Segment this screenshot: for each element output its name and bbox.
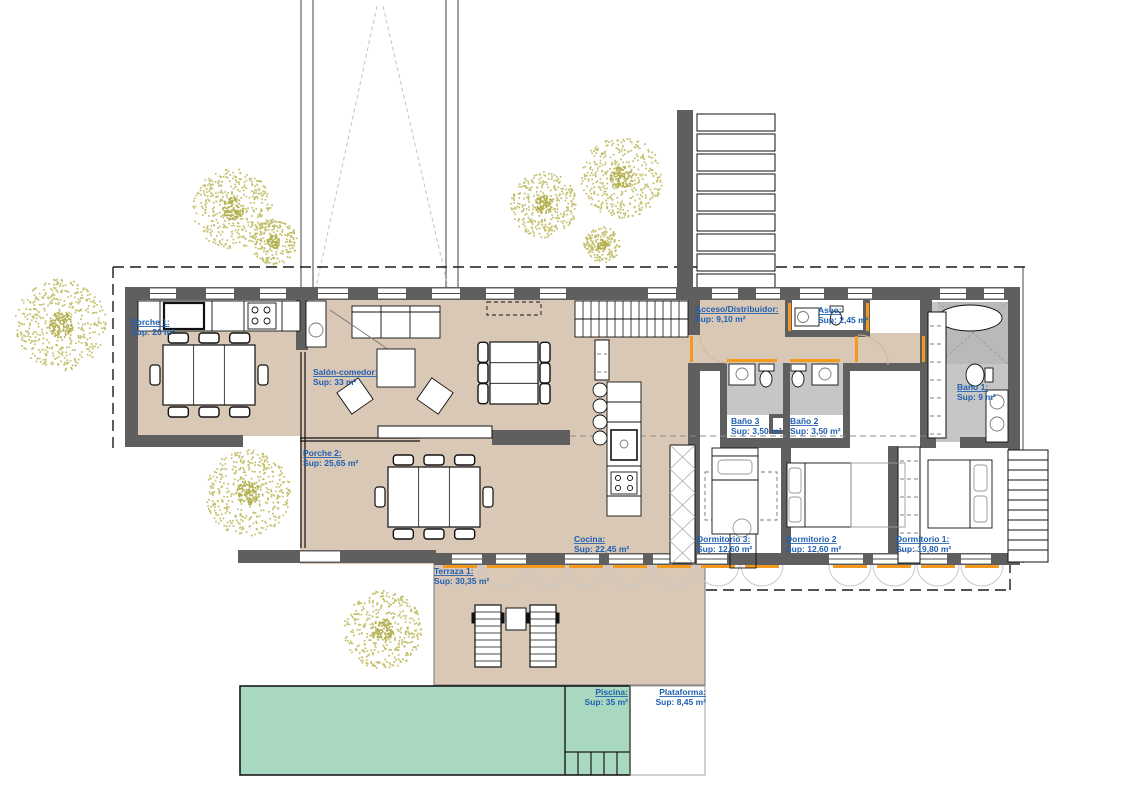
- floor-plan-svg: Porche 1: Sup: 20 m² Salón-comedor: Sup:…: [0, 0, 1122, 794]
- exterior-stair-right: [1008, 450, 1048, 562]
- room-label-cocina-sup: Sup: 22,45 m²: [574, 544, 629, 554]
- tree: [206, 449, 291, 536]
- closet-hatched: [670, 445, 695, 565]
- tree: [192, 169, 273, 250]
- bano2-fixtures: [791, 364, 838, 387]
- room-label-dormitorio1-sup: Sup: 19,80 m²: [896, 544, 951, 554]
- porche2-dining-table: [375, 455, 493, 539]
- room-label-plataforma-name: Plataforma:: [659, 687, 706, 697]
- room-label-dormitorio2-name: Dormitorio 2: [786, 534, 837, 544]
- bano3-fixtures: [729, 364, 774, 387]
- room-label-porche2-name: Porche 2:: [303, 448, 342, 458]
- room-label-cocina-name: Cocina:: [574, 534, 605, 544]
- room-label-terraza-name: Terraza 1:: [434, 566, 474, 576]
- room-label-porche2-sup: Sup: 25,65 m²: [303, 458, 358, 468]
- room-label-bano3-sup: Sup: 3,50 m²: [731, 426, 782, 436]
- room-label-plataforma-sup: Sup: 8,45 m²: [655, 697, 706, 707]
- room-label-terraza-sup: Sup: 30,35 m²: [434, 576, 489, 586]
- exterior-stair-top: [677, 110, 775, 291]
- room-label-acceso-name: Acceso/Distribuidor:: [695, 304, 779, 314]
- tree: [15, 279, 107, 372]
- room-label-bano1-sup: Sup: 9 m²: [957, 392, 996, 402]
- room-label-dormitorio3-name: Dormitorio 3:: [697, 534, 751, 544]
- room-label-acceso-sup: Sup: 9,10 m²: [695, 314, 746, 324]
- room-label-porche1-name: Porche 1:: [131, 317, 170, 327]
- room-label-piscina-name: Piscina:: [595, 687, 628, 697]
- room-label-dormitorio1-name: Dormitorio 1:: [896, 534, 950, 544]
- room-label-aseo-sup: Sup: 2,45 m²: [818, 315, 869, 325]
- floor-plan-page: Porche 1: Sup: 20 m² Salón-comedor: Sup:…: [0, 0, 1122, 794]
- room-label-bano1-name: Baño 1:: [957, 382, 988, 392]
- dormitorio2-bed: [787, 463, 905, 527]
- pool: [240, 686, 630, 775]
- entry-stair: [575, 301, 688, 337]
- tree: [250, 219, 297, 266]
- room-label-bano3-name: Baño 3: [731, 416, 760, 426]
- tree: [510, 171, 576, 238]
- tree: [344, 590, 422, 669]
- tree: [583, 226, 620, 263]
- room-label-piscina-sup: Sup: 35 m²: [585, 697, 629, 707]
- room-label-dormitorio3-sup: Sup: 12,60 m²: [697, 544, 752, 554]
- room-label-salon-name: Salón-comedor:: [313, 367, 378, 377]
- room-label-aseo-name: Aseo:: [818, 305, 842, 315]
- room-label-salon-sup: Sup: 33 m²: [313, 377, 357, 387]
- room-label-bano2-name: Baño 2: [790, 416, 819, 426]
- tree: [581, 138, 663, 219]
- dormitorio1-bed: [928, 460, 992, 528]
- room-label-bano2-sup: Sup: 3,50 m²: [790, 426, 841, 436]
- room-label-porche1-sup: Sup: 20 m²: [131, 327, 175, 337]
- sideboard: [378, 426, 492, 438]
- porche1-dining-table: [150, 333, 268, 417]
- driveway: [301, 0, 458, 287]
- room-label-dormitorio2-sup: Sup: 12,60 m²: [786, 544, 841, 554]
